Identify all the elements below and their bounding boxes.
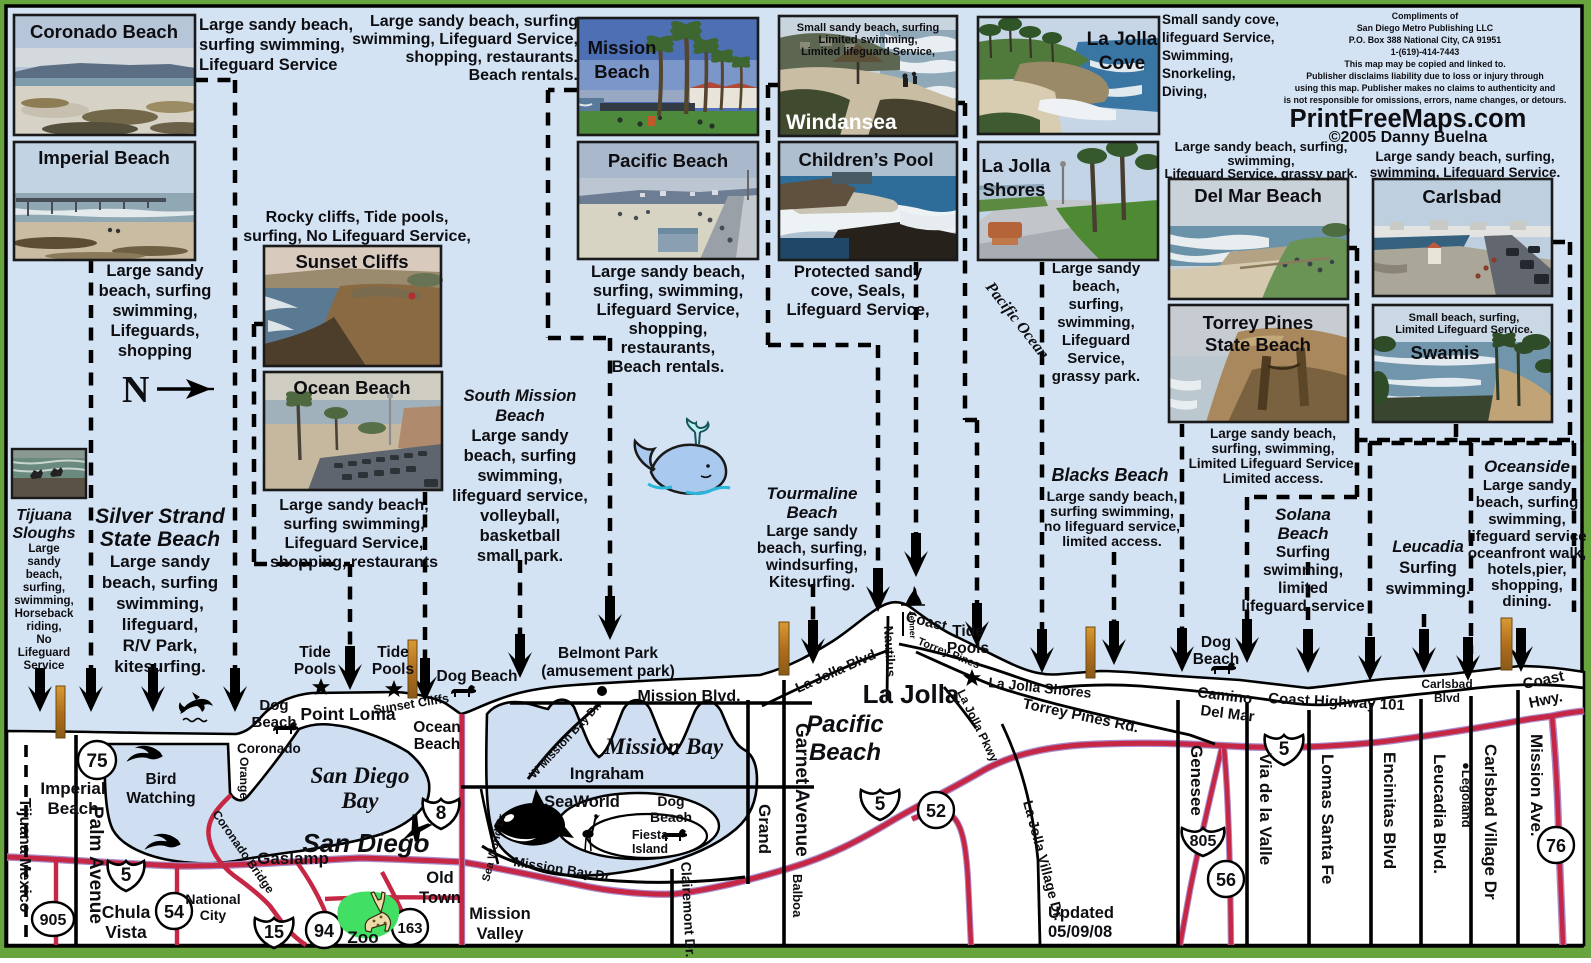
svg-text:54: 54 [164,902,184,922]
svg-text:52: 52 [926,801,946,821]
svg-text:75: 75 [86,751,108,772]
svg-text:Large sandy beach, surfing: Large sandy beach, surfing [370,13,578,30]
svg-text:lifeguard service,: lifeguard service, [452,487,588,505]
svg-text:Blacks Beach: Blacks Beach [1051,465,1168,485]
svg-text:Dog: Dog [259,697,288,714]
svg-text:Sunset Cliffs: Sunset Cliffs [295,251,408,272]
svg-text:surfing swimming,: surfing swimming, [1050,503,1174,519]
svg-text:basketball: basketball [480,527,561,545]
svg-text:●Legoland: ●Legoland [1459,762,1474,828]
svg-text:no lifeguard service,: no lifeguard service, [1044,518,1180,534]
svg-text:Publisher disclaims liability: Publisher disclaims liability due to los… [1306,71,1544,81]
svg-text:oceanfront walk,: oceanfront walk, [1468,545,1586,562]
svg-text:restaurants,: restaurants, [621,339,715,357]
svg-text:Sloughs: Sloughs [12,525,75,542]
svg-text:Large sandy beach, surfing,: Large sandy beach, surfing, [1175,139,1348,154]
svg-text:swimming.: swimming. [1385,580,1470,598]
svg-text:Large sandy beach,: Large sandy beach, [1210,426,1336,441]
svg-text:beach, surfing: beach, surfing [99,282,212,300]
svg-text:Beach: Beach [1277,524,1328,543]
svg-text:Beach: Beach [251,714,296,731]
svg-text:Service,: Service, [1067,350,1125,367]
svg-text:beach, surfing,: beach, surfing, [757,540,867,557]
svg-text:State Beach: State Beach [100,528,220,551]
svg-text:Leucadia: Leucadia [1392,538,1464,556]
svg-text:805: 805 [1190,833,1217,850]
svg-text:Small beach, surfing,: Small beach, surfing, [1409,312,1520,324]
svg-text:Fiesta: Fiesta [632,828,669,842]
svg-text:Lifeguard: Lifeguard [1062,332,1130,349]
svg-text:Beach: Beach [594,61,650,82]
svg-text:lifeguard Service,: lifeguard Service, [1162,30,1275,45]
svg-text:swimming,: swimming, [1488,511,1566,528]
svg-text:Lifeguard Service,: Lifeguard Service, [786,301,929,319]
svg-text:Swamis: Swamis [1411,342,1480,363]
svg-text:Beach rentals.: Beach rentals. [612,358,725,376]
svg-text:Beach: Beach [414,736,461,753]
svg-text:Beach: Beach [1193,651,1240,668]
svg-text:City: City [200,907,227,923]
svg-text:905: 905 [40,912,67,929]
svg-text:Pools: Pools [294,661,336,678]
svg-text:surfing swimming,: surfing swimming, [283,516,424,533]
svg-text:surfing, swimming,: surfing, swimming, [1211,441,1334,456]
svg-text:94: 94 [314,921,334,941]
svg-text:Large sandy beach,: Large sandy beach, [591,263,745,281]
svg-text:(amusement park): (amusement park) [541,663,675,680]
svg-text:surfing,: surfing, [1069,296,1124,313]
svg-text:National: National [185,891,240,907]
svg-text:5: 5 [875,794,886,815]
svg-text:lifeguard service: lifeguard service [1241,598,1365,615]
svg-text:Leucadia Blvd.: Leucadia Blvd. [1430,754,1449,874]
svg-text:Coronado: Coronado [237,741,301,756]
svg-text:Small sandy beach, surfing: Small sandy beach, surfing [797,22,939,34]
svg-text:Swimming,: Swimming, [1162,48,1233,63]
svg-text:Limited Lifeguard Service.: Limited Lifeguard Service. [1395,324,1533,336]
svg-text:Carlsbad: Carlsbad [1422,186,1501,207]
svg-text:Nautilus: Nautilus [881,625,899,677]
svg-text:Protected sandy: Protected sandy [794,263,923,281]
svg-text:swimming,: swimming, [116,594,204,613]
svg-text:La Jolla: La Jolla [1087,29,1158,50]
svg-text:Town: Town [419,889,461,907]
svg-text:swimming,: swimming, [112,302,197,320]
svg-text:swimming,: swimming, [477,467,562,485]
svg-text:State Beach: State Beach [1205,334,1311,355]
svg-text:Tide: Tide [299,644,331,661]
svg-text:Lomas Santa Fe: Lomas Santa Fe [1318,754,1337,884]
svg-text:Carlsbad: Carlsbad [1421,677,1472,691]
svg-text:Kitesurfing.: Kitesurfing. [769,574,855,591]
svg-text:Del Mar Beach: Del Mar Beach [1194,185,1322,206]
svg-text:Blvd: Blvd [1434,691,1460,705]
svg-text:grassy park.: grassy park. [1052,368,1140,385]
svg-text:Lifeguard Service: Lifeguard Service [199,56,337,74]
svg-text:Mission Bay: Mission Bay [604,734,724,759]
svg-text:Pacific: Pacific [806,711,883,738]
svg-text:Watching: Watching [126,790,195,807]
svg-text:La Jolla: La Jolla [863,679,960,709]
svg-text:Surfing: Surfing [1399,559,1457,577]
svg-text:limited: limited [1278,580,1328,597]
svg-text:Beach: Beach [786,503,837,522]
svg-text:swimming, Lifeguard Service.: swimming, Lifeguard Service. [1370,165,1561,180]
svg-text:Mission: Mission [588,37,657,58]
svg-text:Beach rentals.: Beach rentals. [469,67,578,84]
svg-text:Island: Island [632,842,668,856]
svg-text:Large sandy: Large sandy [1483,477,1572,494]
svg-text:Imperial: Imperial [40,779,105,798]
svg-text:shopping,: shopping, [1491,577,1563,594]
svg-text:surfing swimming,: surfing swimming, [199,36,345,54]
svg-text:South Mission: South Mission [464,387,577,405]
svg-text:Ocean Beach: Ocean Beach [293,377,410,398]
svg-text:Lifeguard Service, grassy park: Lifeguard Service, grassy park. [1165,166,1358,181]
svg-text:dining.: dining. [1502,593,1551,610]
svg-text:Coronado Beach: Coronado Beach [30,21,178,42]
svg-text:Gaslamp: Gaslamp [257,849,329,868]
svg-text:San Diego Metro Publishing LL: San Diego Metro Publishing LLC [1357,23,1494,33]
svg-text:No: No [36,634,51,646]
svg-text:Large sandy beach,: Large sandy beach, [1047,488,1178,504]
svg-text:15: 15 [264,922,284,942]
svg-text:P.O. Box 388 National City, CA: P.O. Box 388 National City, CA 91951 [1349,35,1501,45]
svg-text:Tide: Tide [377,644,409,661]
svg-text:Updated: Updated [1048,904,1114,922]
svg-text:Bird: Bird [146,771,177,788]
svg-text:Pacific Beach: Pacific Beach [608,150,728,171]
svg-text:163: 163 [397,920,422,937]
svg-text:8: 8 [436,803,447,824]
svg-text:Service: Service [24,660,65,672]
svg-text:Large sandy beach, surfing,: Large sandy beach, surfing, [1375,149,1554,164]
svg-text:Mission Ave.: Mission Ave. [1527,734,1546,837]
svg-text:Small sandy cove,: Small sandy cove, [1162,12,1279,27]
svg-text:limited access.: limited access. [1062,533,1162,549]
svg-text:Windansea: Windansea [786,111,897,134]
svg-text:Mission Blvd.: Mission Blvd. [637,688,740,705]
svg-text:Valley: Valley [477,925,525,943]
svg-text:beach,: beach, [1072,278,1120,295]
svg-text:is not responsible for omissio: is not responsible for omissions, errors… [1284,95,1567,105]
svg-text:Cove: Cove [1099,53,1145,74]
svg-text:Horseback: Horseback [15,608,74,620]
svg-text:La Jolla: La Jolla [982,155,1052,176]
svg-text:Limited lifeguard Service,: Limited lifeguard Service, [801,46,935,58]
svg-text:Belmont Park: Belmont Park [558,645,658,662]
svg-text:Beach: Beach [650,809,692,825]
svg-text:Balboa: Balboa [790,874,805,918]
svg-text:Tide: Tide [952,623,984,640]
svg-text:Mission: Mission [469,905,530,923]
svg-text:Bay: Bay [340,788,379,813]
svg-text:Shores: Shores [983,179,1046,200]
svg-text:Large sandy: Large sandy [110,552,211,571]
svg-text:Grand: Grand [755,804,774,854]
svg-text:kitesurfing.: kitesurfing. [114,657,206,676]
svg-text:swimming,: swimming, [14,595,73,607]
svg-text:lifeguard service: lifeguard service [1467,528,1586,545]
svg-text:Beach: Beach [809,739,881,766]
svg-text:swimming,: swimming, [1057,314,1135,331]
svg-text:San Diego: San Diego [310,763,409,788]
svg-text:Torrey Pines: Torrey Pines [1203,312,1314,333]
svg-text:shopping, restaurants: shopping, restaurants [270,554,438,571]
svg-text:Rocky cliffs, Tide pools,: Rocky cliffs, Tide pools, [266,209,449,226]
svg-text:R/V Park,: R/V Park, [123,636,198,655]
svg-text:sandy: sandy [27,556,61,568]
svg-text:riding,: riding, [26,621,61,633]
svg-text:Large: Large [28,543,59,555]
svg-text:Pools: Pools [372,661,414,678]
svg-text:Limited access.: Limited access. [1223,471,1324,486]
svg-text:Large sandy: Large sandy [1052,260,1141,277]
svg-text:volleyball,: volleyball, [480,507,560,525]
svg-text:©2005 Danny Buelna: ©2005 Danny Buelna [1329,129,1488,146]
svg-text:windsurfing,: windsurfing, [765,557,858,574]
svg-text:Imperial Beach: Imperial Beach [38,147,170,168]
svg-text:Zoo: Zoo [347,928,378,947]
svg-text:76: 76 [1546,836,1566,856]
svg-text:Tijuana Mexico: Tijuana Mexico [16,798,33,913]
svg-text:swimming,: swimming, [1263,562,1343,579]
svg-text:Via de la Valle: Via de la Valle [1256,753,1275,865]
svg-text:Large sandy: Large sandy [766,523,858,540]
svg-text:beach, surfing: beach, surfing [1476,494,1579,511]
svg-text:hotels,pier,: hotels,pier, [1487,561,1566,578]
svg-text:Encinitas Blvd: Encinitas Blvd [1380,752,1399,869]
svg-text:This map may be copied and lin: This map may be copied and linked to. [1344,59,1505,69]
svg-text:Diving,: Diving, [1162,84,1207,99]
svg-text:N: N [122,369,149,411]
svg-text:beach, surfing: beach, surfing [464,447,577,465]
svg-text:Children’s Pool: Children’s Pool [799,149,934,170]
svg-text:SeaWorld: SeaWorld [544,793,620,811]
svg-text:Solana: Solana [1275,505,1331,524]
svg-text:Beach: Beach [495,407,545,425]
svg-text:Lifeguards,: Lifeguards, [111,322,200,340]
svg-text:Old: Old [426,869,454,887]
svg-text:Silver Strand: Silver Strand [95,505,226,528]
svg-text:Ocean: Ocean [413,719,460,736]
svg-text:beach,: beach, [26,569,62,581]
svg-text:Chula: Chula [102,902,151,922]
svg-text:Large sandy: Large sandy [106,262,204,280]
svg-text:Dog: Dog [1201,634,1231,651]
svg-text:Snorkeling,: Snorkeling, [1162,66,1236,81]
svg-text:Large sandy beach,: Large sandy beach, [279,497,428,514]
svg-text:Tijuana: Tijuana [16,507,72,524]
svg-text:Lifeguard Service,: Lifeguard Service, [285,535,424,552]
svg-text:using this map. Publisher make: using this map. Publisher makes no claim… [1295,83,1556,93]
svg-text:56: 56 [1216,870,1236,890]
svg-text:Limited Lifeguard Service.: Limited Lifeguard Service. [1189,456,1358,471]
svg-text:Carlsbad Village Dr: Carlsbad Village Dr [1481,744,1500,900]
svg-text:small park.: small park. [477,547,563,565]
svg-text:Large sandy: Large sandy [471,427,569,445]
svg-text:surfing, No Lifeguard Service,: surfing, No Lifeguard Service, [243,228,471,245]
svg-text:Dog Beach: Dog Beach [437,668,518,685]
svg-text:Orange: Orange [237,757,251,799]
svg-text:1-(619)-414-7443: 1-(619)-414-7443 [1391,47,1460,57]
svg-text:Compliments of: Compliments of [1392,11,1459,21]
svg-text:5: 5 [1279,739,1290,760]
svg-text:surfing, swimming,: surfing, swimming, [593,282,743,300]
svg-text:beach, surfing: beach, surfing [102,573,218,592]
svg-text:Lifeguard Service,: Lifeguard Service, [596,301,739,319]
svg-text:shopping: shopping [118,342,192,360]
svg-text:Lifeguard: Lifeguard [18,647,70,659]
svg-text:Surfing: Surfing [1276,544,1330,561]
svg-text:Vista: Vista [105,922,147,942]
svg-text:shopping,: shopping, [629,320,708,338]
svg-text:Large sandy beach,: Large sandy beach, [199,16,353,34]
svg-text:cove, Seals,: cove, Seals, [811,282,905,300]
svg-text:05/09/08: 05/09/08 [1048,923,1112,941]
svg-text:Dog: Dog [657,793,684,809]
svg-text:swimming, Lifeguard Service,: swimming, Lifeguard Service, [352,31,578,48]
svg-text:Oceanside: Oceanside [1484,457,1570,476]
svg-text:lifeguard,: lifeguard, [122,615,199,634]
svg-text:Tourmaline: Tourmaline [767,484,858,503]
svg-text:Limited swimming,: Limited swimming, [818,34,917,46]
svg-text:5: 5 [121,865,132,886]
svg-text:Ingraham: Ingraham [570,765,644,783]
svg-text:Genesee: Genesee [1187,745,1206,816]
svg-text:shopping, restaurants.: shopping, restaurants. [406,49,578,66]
svg-text:surfing,: surfing, [23,582,65,594]
